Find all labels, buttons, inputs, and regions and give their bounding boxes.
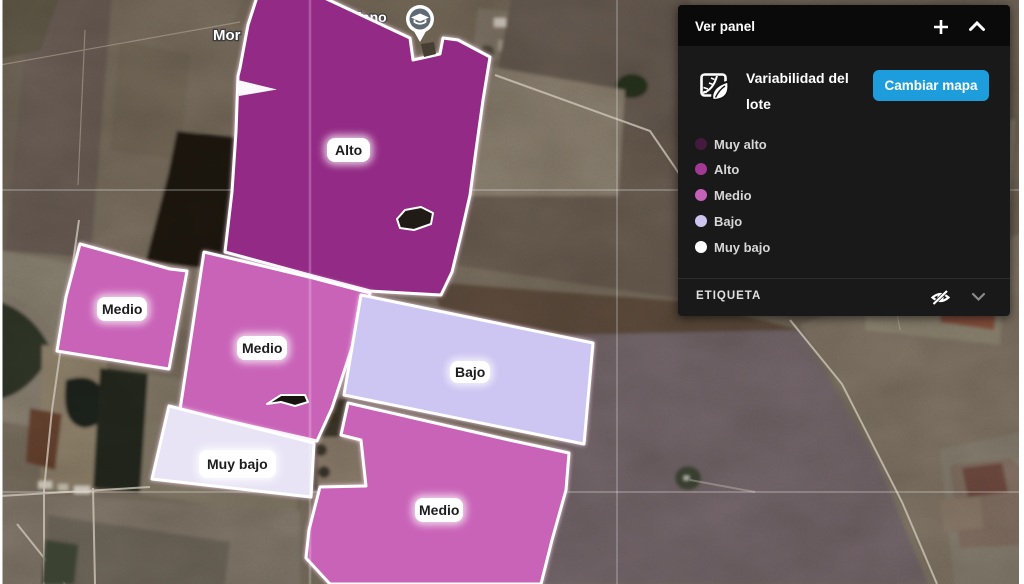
svg-text:Mor: Mor (213, 27, 241, 44)
